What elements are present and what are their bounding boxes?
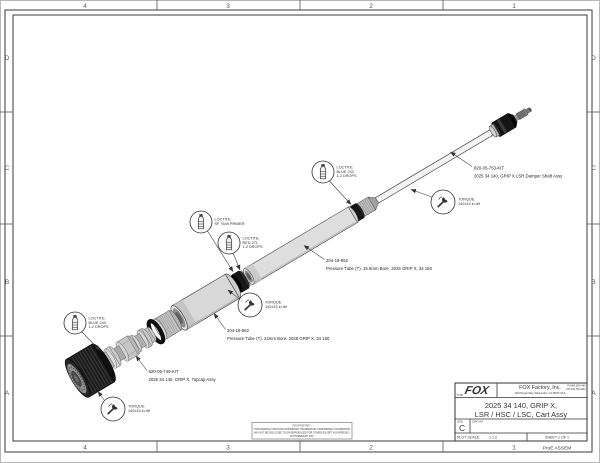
callout-text: 1-2 DROPS [89, 325, 110, 329]
zone-top-3: 3 [226, 3, 230, 10]
zone-left-b: B [5, 279, 9, 286]
zone-right-b: B [591, 279, 595, 286]
company-fax: FAX 831-768-9342 [566, 388, 586, 391]
proprietary-line: AUTHORIZED BY FOX. [290, 435, 315, 438]
plot-scale-value: 1:1.2 [489, 436, 497, 440]
zone-top-1: 1 [512, 3, 516, 10]
callout-text: TORQUE: [265, 301, 282, 305]
proprietary-line: MAY NOT BE DISCLOSED TO OR REPRODUCED FO… [254, 432, 350, 435]
svg-text:FOX: FOX [464, 384, 492, 397]
zone-right-a: A [591, 390, 596, 397]
zone-left-d: D [5, 55, 10, 62]
part-description: Pressure Tube (T), 24mm Bore, 2025 GRIP … [227, 336, 330, 341]
zone-bottom-2: 2 [369, 445, 373, 452]
company-name: FOX Factory, Inc. [519, 385, 561, 391]
callout-text: 140±15 in-lbf [265, 305, 288, 309]
zone-right-d: D [591, 55, 596, 62]
drawing-sheet: 4 3 2 1 4 3 2 1 D C B A D C B A ProE ASS… [0, 0, 600, 463]
title-block: FOX FOX Factory, Inc. 130 Hangar Way, Wa… [455, 383, 587, 441]
zone-left-c: C [5, 165, 10, 172]
callout-text: SF 7649 PRIMER [215, 222, 245, 226]
part-description: 2025 34 140, GRIP X, Topcap Assy [149, 377, 217, 382]
drawing-canvas: 4 3 2 1 4 3 2 1 D C B A D C B A ProE ASS… [0, 0, 600, 463]
fox-logo: FOX [464, 384, 492, 397]
callout-text: TORQUE: [128, 405, 145, 409]
callout-text: TORQUE: [458, 198, 475, 202]
part-number: 820-05-753-KIT [474, 166, 504, 171]
part-number: 204-18-952 [326, 258, 349, 263]
part-number: 820-05-749-KIT [149, 369, 179, 374]
proprietary-line: PROPRIETARY: [293, 424, 312, 428]
footer-proe-assem: ProE ASSEM [543, 446, 572, 452]
drawing-title-line1: 2025 34 140, GRIP X, [485, 401, 557, 410]
type-label: TYPE [457, 394, 464, 397]
company-address: 130 Hangar Way, Watsonville, CA 95076 US… [515, 392, 566, 395]
plot-scale-label: PLOT SCALE [457, 436, 480, 440]
sheet-size: C [459, 423, 465, 433]
callout-text: 1-2 DROPS [243, 245, 264, 249]
zone-bottom-3: 3 [226, 445, 230, 452]
part-number: 204-18-962 [227, 328, 250, 333]
callout-text: 1-2 DROPS [337, 174, 358, 178]
proprietary-line: THIS DRAWING CONTAINS PROPRIETARY INFORM… [254, 428, 351, 431]
sheet-info: SHEET 1 OF 1 [545, 436, 569, 440]
callout-text: 140±15 in-lbf [128, 409, 151, 413]
part-description: Pressure Tube (T), 15.5mm Bore, 2025 GRI… [326, 266, 433, 271]
zone-right-c: C [591, 165, 596, 172]
dwg-no-label: DWG NO [473, 421, 484, 424]
part-description: 2025 34 140, GRIP X LSR Damper Shaft Ass… [474, 174, 563, 179]
company-phone: PH 800-369-7469 [567, 386, 586, 388]
zone-left-a: A [5, 390, 10, 397]
drawing-title-line2: LSR / HSC / LSC, Cart Assy [475, 410, 568, 419]
zone-bottom-4: 4 [83, 445, 87, 452]
zone-top-2: 2 [369, 3, 373, 10]
proprietary-note: PROPRIETARY: THIS DRAWING CONTAINS PROPR… [252, 423, 352, 440]
zone-top-4: 4 [83, 3, 87, 10]
zone-bottom-1: 1 [512, 445, 516, 452]
callout-text: LOCTITE: [215, 218, 232, 222]
callout-text: 140±15 in-lbf [458, 202, 481, 206]
